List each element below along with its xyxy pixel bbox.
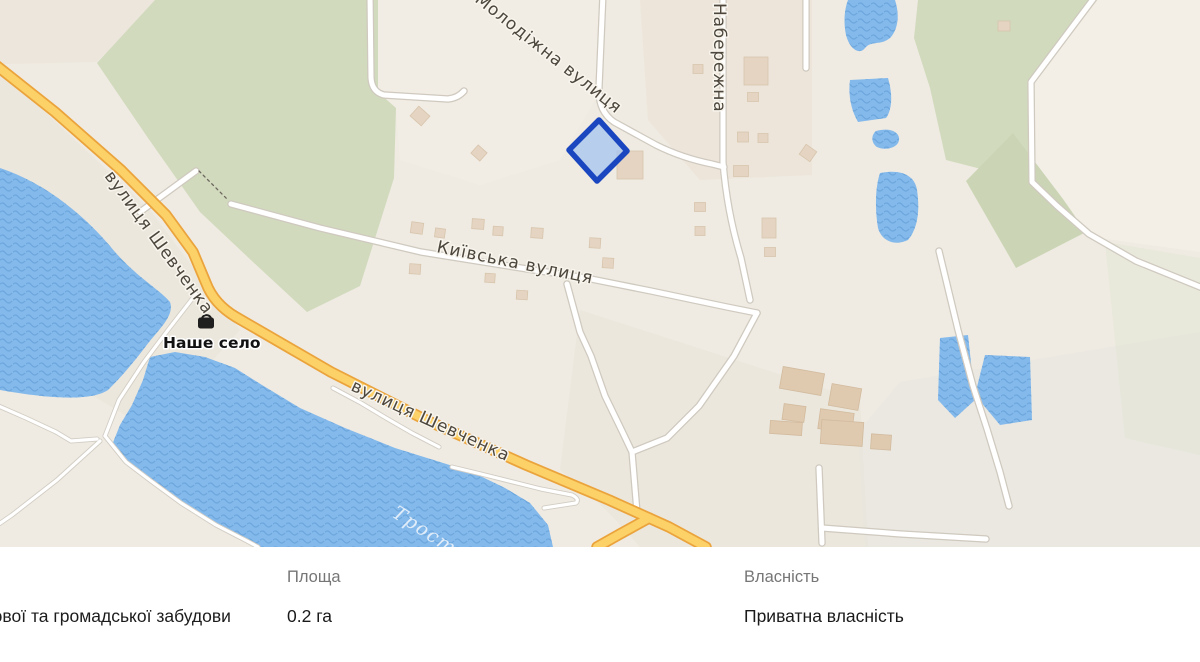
ownership-value: Приватна власність [744,606,904,627]
info-panel: нової та громадської забудови Площа 0.2 … [0,547,1200,662]
street-label-naberezhna: Набережна [709,3,729,112]
land-use-value: нової та громадської забудови [0,606,231,627]
area-value: 0.2 га [287,606,332,627]
area-label: Площа [287,568,341,587]
map-viewport[interactable]: Молодіжна вулиця Набережна Київська вули… [0,0,1200,547]
map-canvas: Молодіжна вулиця Набережна Київська вули… [0,0,1200,547]
page: Молодіжна вулиця Набережна Київська вули… [0,0,1200,662]
poi-label-nashe-selo: Наше село [163,334,261,352]
ownership-label: Власність [744,568,819,587]
